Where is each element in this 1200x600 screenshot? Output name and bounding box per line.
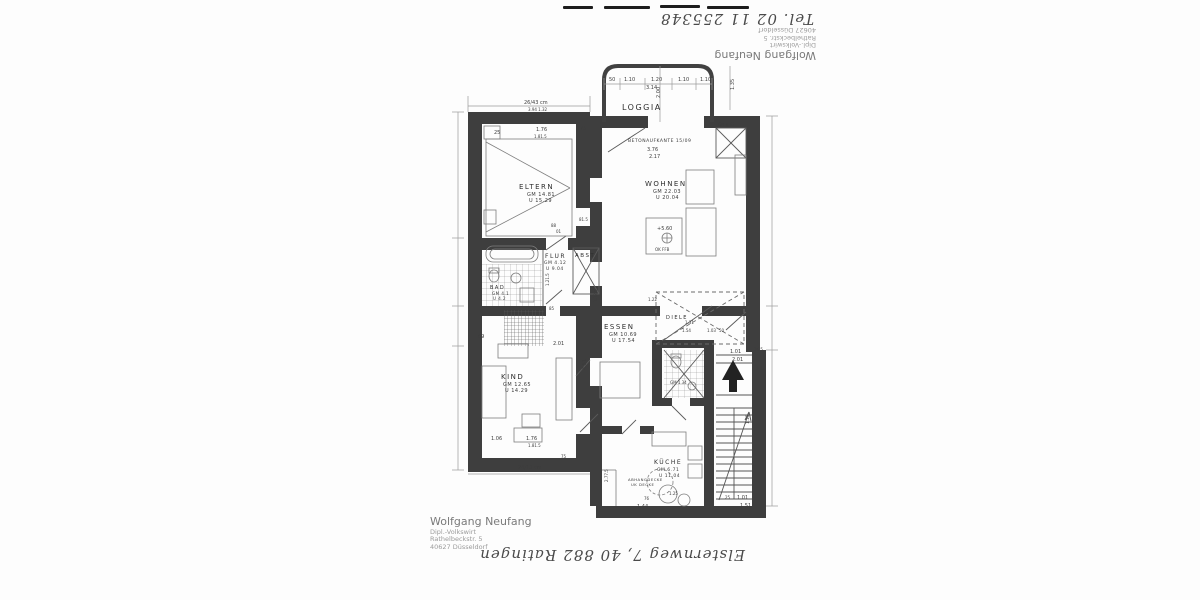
- dimension-label: 50: [609, 77, 615, 83]
- dimension-label: 1.21.5: [545, 273, 550, 286]
- room-perimeter-wohnen: U 20.04: [656, 195, 679, 201]
- wall-segment: [690, 398, 714, 406]
- dimension-label: 1.51: [740, 503, 751, 509]
- dimension-label: 24/13 cm: [518, 465, 542, 471]
- room-label-flur: FLUR: [545, 253, 566, 260]
- stamp-name: Wolfgang Neufang: [430, 516, 570, 529]
- floor-plan-svg: LOGGIA ELTERN GM 14.81 U 15.29 WOHNEN GM…: [0, 0, 1200, 600]
- dimension-label: 1.44: [637, 504, 648, 510]
- wall-segment: [468, 238, 546, 250]
- dimension-label: 1.81.5: [534, 134, 547, 139]
- dimension-label: 1.01: [730, 349, 741, 355]
- wall-segment: [590, 386, 602, 506]
- wall-segment: [652, 348, 662, 402]
- dimension-label: 81.5: [579, 217, 588, 222]
- room-label-loggia: LOGGIA: [622, 103, 662, 112]
- room-label-abst: ABST: [575, 253, 595, 259]
- dimension-label: 69: [478, 334, 484, 340]
- wall-segment: [590, 316, 602, 358]
- handwritten-address-note: Elsternweg 7, 40 882 Ratingen: [470, 546, 745, 564]
- wall-segment: [746, 116, 760, 352]
- dimension-label: 25: [494, 130, 500, 136]
- dimension-label: 25: [725, 495, 731, 500]
- thin-lines: [543, 128, 746, 434]
- room-label-kind: KIND: [501, 373, 524, 381]
- dimension-label: 1.54: [682, 328, 691, 333]
- dimension-label: 1.35: [730, 79, 736, 90]
- room-perimeter-essen: U 17.54: [612, 338, 635, 344]
- room-label-essen: ESSEN: [604, 323, 634, 331]
- dimension-label: +5.60: [657, 226, 672, 232]
- room-area-flur: GM 4.12: [544, 260, 566, 266]
- wall-segment: [468, 112, 590, 124]
- dimension-label: 1.06: [491, 436, 502, 442]
- room-area-kueche: GM 6.71: [657, 467, 679, 473]
- dimension-label: 1.76: [536, 127, 547, 133]
- dimension-label: 1.12.5: [593, 289, 598, 302]
- dimension-label: 2.77.5: [604, 469, 609, 482]
- dimension-label: 2.17: [649, 154, 660, 160]
- dimension-label: 1.25: [669, 491, 678, 496]
- dimension-label: 85: [549, 306, 555, 311]
- dimension-label: 26/43 cm: [524, 100, 548, 106]
- dimension-label: 51: [653, 357, 658, 363]
- room-perimeter-kind: U 14.29: [505, 388, 528, 394]
- dimension-label: 1.22: [648, 297, 657, 302]
- entrance-arrow-icon: [722, 360, 744, 392]
- wall-segment: [704, 348, 714, 508]
- dimension-label: 50: [719, 328, 725, 333]
- dimension-label: 1.03: [707, 328, 716, 333]
- dimension-label: 1.10: [678, 77, 689, 83]
- dimension-label: 1.81.5: [528, 443, 541, 448]
- dimension-label: 2.01: [553, 341, 564, 347]
- wall-segment: [652, 340, 714, 348]
- room-perimeter-eltern: U 15.29: [529, 198, 552, 204]
- room-perimeter-flur: U 9.04: [546, 266, 564, 272]
- dimension-label: 1.10: [624, 77, 635, 83]
- dimension-label: 1.16: [745, 415, 750, 424]
- room-perimeter-bad: U 4.2: [493, 296, 506, 301]
- wall-segment: [590, 128, 602, 178]
- room-label-kueche: KÜCHE: [654, 459, 682, 466]
- wall-segment: [590, 116, 648, 128]
- dimension-label: 2.00: [656, 87, 662, 98]
- dimension-label: 75: [580, 126, 586, 132]
- scanned-floor-plan-page: Tel. 02 11 255348 Wolfgang Neufang Dipl.…: [0, 0, 1200, 600]
- wall-segment: [652, 398, 672, 406]
- note-ukdecke: UK DECKE: [631, 482, 654, 487]
- dimension-label: 36.5: [754, 347, 763, 352]
- dimension-label: 5.82: [756, 366, 765, 371]
- wall-segment: [752, 350, 766, 506]
- wall-segment: [602, 306, 660, 316]
- note-betonaufkante: BETONAUFKANTE 15/09: [628, 138, 691, 144]
- wall-segment: [702, 306, 760, 316]
- dimension-label: 3.94 1.32: [528, 107, 548, 112]
- dimension-label: GM 0.63: [718, 122, 735, 127]
- dimension-label: OK FFB: [655, 247, 670, 252]
- room-label-wohnen: WOHNEN: [645, 180, 687, 188]
- room-label-eltern: ELTERN: [519, 183, 554, 191]
- dimension-label: 1.10: [700, 77, 711, 83]
- dimension-label: GM 1.34: [670, 380, 687, 385]
- dimension-label: 3.76: [647, 147, 658, 153]
- dimension-label: 76: [644, 496, 650, 501]
- dimension-label: 1.20: [651, 77, 662, 83]
- dimension-label: 1.76: [526, 436, 537, 442]
- dimension-label: 88: [551, 223, 557, 228]
- wall-segment: [468, 112, 482, 470]
- dimension-label: 1.01: [737, 495, 748, 501]
- wall-segment: [596, 426, 622, 434]
- dimension-label: 1.31: [685, 320, 694, 325]
- dimension-label: 75: [561, 454, 567, 459]
- dimension-label: 2.01: [732, 357, 743, 363]
- dimension-label: 4.51: [582, 359, 588, 370]
- stair-tile-block: [504, 310, 544, 346]
- wall-segment: [560, 306, 602, 316]
- dimension-label: 01: [556, 229, 562, 234]
